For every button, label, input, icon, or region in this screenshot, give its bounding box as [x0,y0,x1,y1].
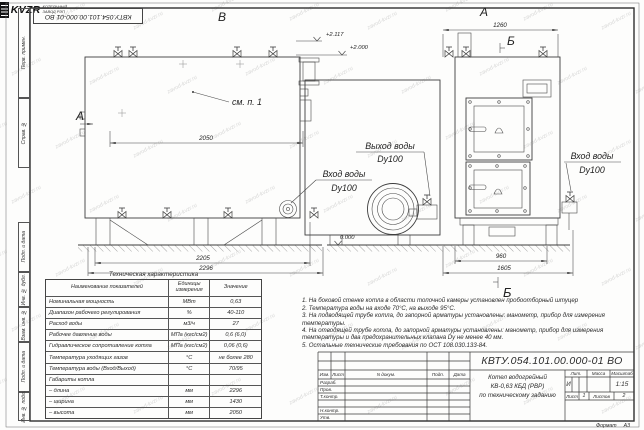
watermark: zavod-kvzr.ru [55,130,87,151]
watermark: zavod-kvzr.ru [367,139,399,160]
table-row: Температура уходящих газов°Сне более 280 [46,351,261,362]
watermark: zavod-kvzr.ru [601,11,633,32]
boiler-rear-view: 0.000 [299,58,450,252]
table-row: Габариты котла [46,374,261,385]
table-row: Диапазон рабочего регулирования%40-110 [46,307,261,318]
col-izm: Изм. [318,370,331,379]
stamp-podp-data-1: Подп. и дата [18,222,30,272]
row-tkontr: Т.контр. [320,393,346,400]
scale-value: 1:15 [610,378,634,391]
watermark: zavod-kvzr.ru [367,11,399,32]
watermark: zavod-kvzr.ru [635,203,644,224]
col-header-value: Значение [209,280,261,296]
watermark: zavod-kvzr.ru [167,75,199,96]
watermark: zavod-kvzr.ru [211,0,243,13]
sheet-label: Лист [565,392,579,400]
watermark: zavod-kvzr.ru [445,249,477,270]
watermark: zavod-kvzr.ru [289,258,321,279]
watermark: zavod-kvzr.ru [0,377,8,398]
elevation-2000: +2.000 [350,45,369,51]
col-list: Лист [331,370,345,379]
watermark: zavod-kvzr.ru [557,66,589,87]
watermark: zavod-kvzr.ru [89,194,121,215]
table-row: Гидравлическое сопротивление котлаМПа (к… [46,340,261,351]
tech-table-header: Наименование показателей Единицы измерен… [46,280,261,296]
outlet-label: Выход воды [365,141,415,151]
scale-label: Масштаб [610,370,634,377]
note-2: 2. Температура воды на входе 70°С, на вы… [302,305,614,312]
tech-table-title: Техническая характеристика [45,271,262,278]
watermark: zavod-kvzr.ru [523,258,555,279]
sheet-value: 1 [579,392,589,400]
inlet-mid-dn-label: Dy100 [331,183,357,193]
see-note-callout: см. п. 1 [232,97,262,107]
section-marker-b-top: Б [507,34,515,48]
water-port-callouts: Выход воды Dy100 Вход воды Dy100 [291,141,430,203]
mass-label: Масса [587,370,610,377]
row-razrab: Разраб. [320,379,346,386]
sheets-label: Листов [589,392,614,400]
format-note: Формат А3 [596,422,640,429]
watermark: zavod-kvzr.ru [11,185,43,206]
front-view-dimensions: А 1260 Б 960 1605 Б Вход воды Dy100 [443,5,621,300]
watermark: zavod-kvzr.ru [401,75,433,96]
table-row: Рабочее давление водыМПа (кгс/см2)0,6 (6… [46,329,261,340]
stamp-vzam-inv: Взам. инв. № [18,307,30,342]
watermark: zavod-kvzr.ru [601,139,633,160]
doc-number-top: КВТУ.054.101.00.000-01 ВО [33,8,143,24]
view-label-a: А [479,5,488,19]
watermark: zavod-kvzr.ru [289,130,321,151]
table-row: – длинамм2296 [46,385,261,396]
row-nkontr: Н.контр. [320,407,346,414]
outlet-dn-label: Dy100 [377,154,403,164]
col-dokum: N докум. [345,370,427,379]
inlet-mid-label: Вход воды [323,169,366,179]
watermark: zavod-kvzr.ru [367,267,399,288]
stamp-inv-podl: Инв. № подл. [18,392,30,421]
col-data: Дата [449,370,470,379]
stamp-inv-dubl: Инв. № дубл. [18,272,30,307]
watermark: zavod-kvzr.ru [601,267,633,288]
stamp-perv-primen: Перв. примен. [18,8,30,98]
row-prov: Пров. [320,386,346,393]
drawing-sheet: zavod-kvzr.ruzavod-kvzr.ruzavod-kvzr.ruz… [0,0,644,430]
watermark: zavod-kvzr.ru [479,57,511,78]
watermark: zavod-kvzr.ru [479,185,511,206]
watermark: zavod-kvzr.ru [323,66,355,87]
mass-value [587,378,610,391]
dim-960: 960 [496,253,507,260]
side-view-dimensions: 2050 2205 2296 А см. п. 1 В +2.117 +2.00… [75,10,369,276]
inlet-right-dn-label: Dy100 [579,165,605,175]
table-row: Номинальная мощностьМВт0,63 [46,296,261,307]
watermark: zavod-kvzr.ru [635,331,644,352]
note-4: 4. На отводящей трубе котла, до запорной… [302,327,614,341]
table-row: Температура воды (Вход/Выход)°С70/95 [46,363,261,374]
technical-notes: 1. На боковой стенке котла в области топ… [302,297,614,350]
watermark: zavod-kvzr.ru [289,2,321,23]
inlet-right-label: Вход воды [571,151,614,161]
watermark: zavod-kvzr.ru [523,2,555,23]
watermark: zavod-kvzr.ru [245,57,277,78]
dim-1260: 1260 [493,22,507,29]
boiler-front-view [445,33,577,252]
watermark: zavod-kvzr.ru [0,249,8,270]
watermark: zavod-kvzr.ru [289,386,321,407]
col-header-units: Единицы измерения [168,280,210,296]
watermark: zavod-kvzr.ru [401,203,433,224]
tech-table: Техническая характеристика Наименование … [45,271,262,419]
table-row: Расход водым3/ч27 [46,318,261,329]
watermark: zavod-kvzr.ru [635,75,644,96]
sheets-value: 2 [614,392,634,400]
dim-2205: 2205 [195,255,210,262]
col-podp: Подп. [427,370,449,379]
doc-number-main: КВТУ.054.101.00.000-01 ВО [471,353,633,369]
watermark: zavod-kvzr.ru [133,139,165,160]
watermark: zavod-kvzr.ru [445,0,477,13]
kvzr-logo-icon [0,2,9,18]
watermark: zavod-kvzr.ru [89,66,121,87]
table-row: – ширинамм1430 [46,396,261,407]
watermark: zavod-kvzr.ru [211,249,243,270]
product-name: Котел водогрейный КВ-0,63 КБД (РВР) по т… [470,371,565,401]
dim-2050: 2050 [198,135,213,142]
note-5: 5. Остальные технические требования по О… [302,342,614,349]
elevation-0000: 0.000 [340,235,355,241]
stamp-sprav-n: Справ. № [18,98,30,168]
watermark: zavod-kvzr.ru [445,121,477,142]
watermark: zavod-kvzr.ru [0,121,8,142]
watermark: zavod-kvzr.ru [323,194,355,215]
lit-value: И [565,378,572,391]
note-3: 3. На подводящей трубе котла, до запорно… [302,312,614,326]
boiler-side-view [78,47,322,252]
watermark: zavod-kvzr.ru [211,121,243,142]
view-marker-a-side: А [75,109,84,123]
watermark: zavod-kvzr.ru [557,194,589,215]
row-utv: Утв. [320,414,346,421]
note-1: 1. На боковой стенке котла в области топ… [302,297,614,304]
watermark: zavod-kvzr.ru [523,130,555,151]
watermark: zavod-kvzr.ru [245,185,277,206]
view-label-v: В [218,10,226,24]
lit-label: Лит. [565,370,587,377]
col-header-name: Наименование показателей [46,280,168,296]
watermark: zavod-kvzr.ru [167,203,199,224]
watermark: zavod-kvzr.ru [367,395,399,416]
stamp-podp-data-2: Подп. и дата [18,342,30,392]
table-row: – высотамм2050 [46,407,261,418]
elevation-2117: +2.117 [326,32,344,38]
dim-1605: 1605 [497,265,511,272]
